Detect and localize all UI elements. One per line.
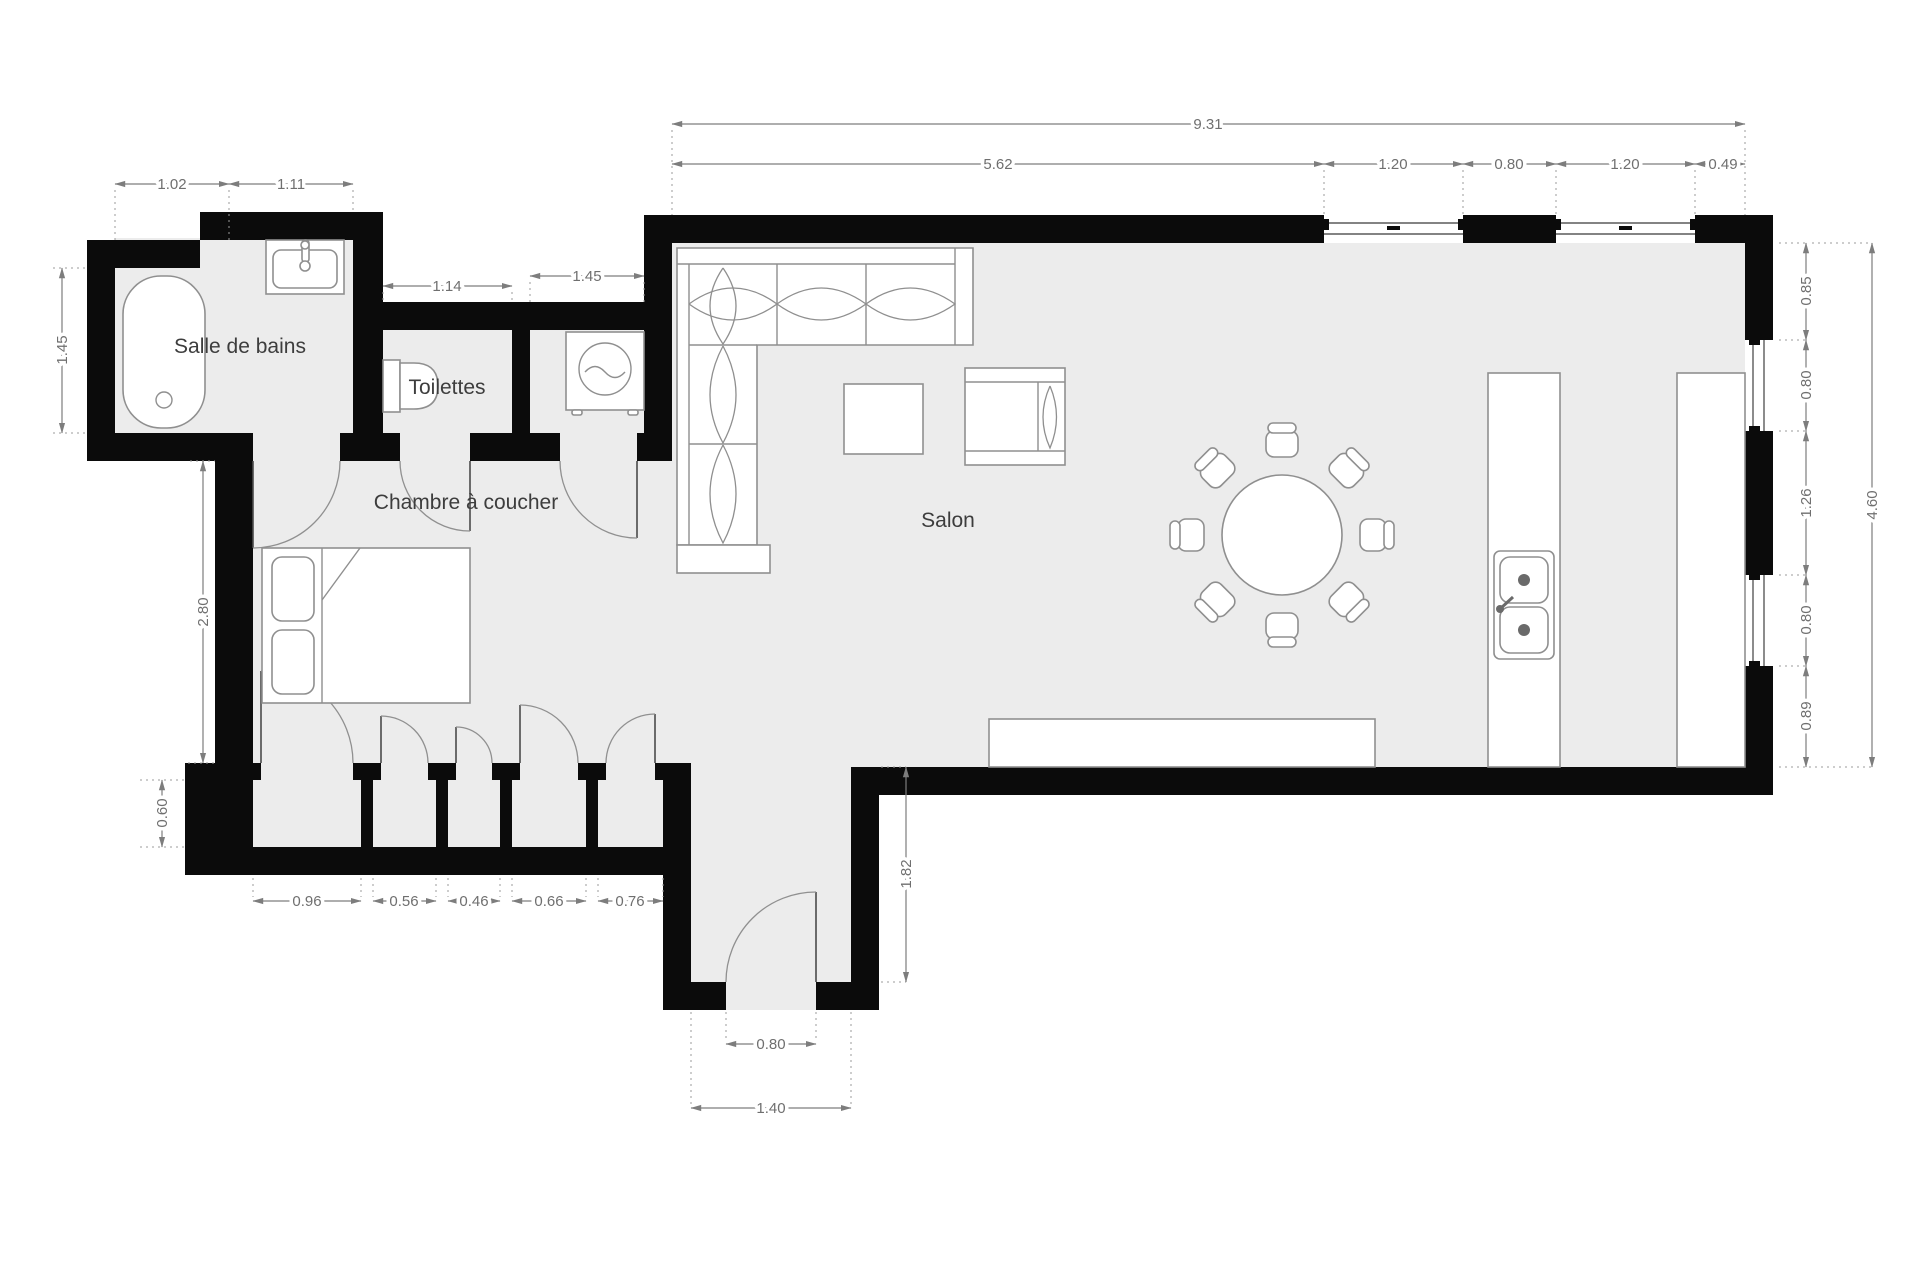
- washing-machine: [566, 332, 644, 415]
- dining-set: [1170, 423, 1394, 647]
- window-right-2: [1745, 575, 1773, 666]
- wall-closet-south: [185, 847, 691, 875]
- wall-band-c: [470, 433, 560, 461]
- room-label-living: Salon: [921, 509, 975, 532]
- floor-plan-page: Salle de bains Toilettes Chambre à couch…: [0, 0, 1920, 1280]
- window-right-1: [1745, 340, 1773, 431]
- floor-plan-svg: Salle de bains Toilettes Chambre à couch…: [0, 0, 1920, 1280]
- dim-bath-height: 1.45: [54, 335, 71, 364]
- dim-overall-width: 9.31: [1193, 116, 1222, 133]
- dim-top-4: 1.20: [1610, 156, 1639, 173]
- wall-bedroom-west: [215, 433, 253, 763]
- window-top-1: [1324, 215, 1463, 243]
- wall-top-2: [1463, 215, 1556, 243]
- dim-right-2: 0.80: [1798, 370, 1815, 399]
- wall-top-3: [1695, 215, 1773, 243]
- dim-entry-door: 0.80: [756, 1036, 785, 1053]
- wall-vestibule-south-a: [663, 982, 726, 1010]
- dim-bath-top-1: 1.02: [157, 176, 186, 193]
- room-label-bathroom: Salle de bains: [174, 335, 306, 358]
- window-top-2: [1556, 215, 1695, 243]
- armchair: [965, 368, 1065, 465]
- wall-bath-toilets: [353, 240, 383, 433]
- dim-closet-3: 0.46: [459, 893, 488, 910]
- dim-top-2: 1.20: [1378, 156, 1407, 173]
- bathroom-sink: [266, 240, 344, 294]
- coffee-table: [844, 384, 923, 454]
- dim-right-4: 0.80: [1798, 605, 1815, 634]
- pillow: [272, 630, 314, 694]
- wall-living-west: [644, 243, 672, 461]
- dim-closet-5: 0.76: [615, 893, 644, 910]
- wall-bottom: [851, 767, 1773, 795]
- dim-toilets-width: 1.14: [432, 278, 461, 295]
- wall-toilets-utility-top: [383, 302, 672, 330]
- dining-table: [1222, 475, 1342, 595]
- dim-closet-4: 0.66: [534, 893, 563, 910]
- wall-top-1: [644, 215, 1324, 243]
- bed: [262, 548, 470, 703]
- wall-vestibule-east: [851, 767, 879, 1010]
- dim-top-5: 0.49: [1708, 156, 1737, 173]
- dim-right-1: 0.85: [1798, 276, 1815, 305]
- dim-closet-depth: 0.60: [154, 798, 171, 827]
- dim-utility-width: 1.45: [572, 268, 601, 285]
- dim-entry-width: 1.40: [756, 1100, 785, 1117]
- sideboard: [989, 719, 1375, 767]
- dim-bedroom-height: 2.80: [195, 597, 212, 626]
- dim-bath-top-2: 1.11: [277, 176, 305, 193]
- dim-closet-2: 0.56: [389, 893, 418, 910]
- wall-vestibule-south-b: [816, 982, 879, 1010]
- dim-entry-hall: 1.82: [898, 859, 915, 888]
- pillow: [272, 557, 314, 621]
- dim-right-5: 0.89: [1798, 701, 1815, 730]
- kitchen-island: [1488, 373, 1560, 767]
- dim-top-3: 0.80: [1494, 156, 1523, 173]
- wall-right-1: [1745, 243, 1773, 340]
- wall-bath-top-right: [200, 212, 383, 240]
- dim-closet-1: 0.96: [292, 893, 321, 910]
- dim-top-1: 5.62: [983, 156, 1012, 173]
- dim-overall-height: 4.60: [1864, 490, 1881, 519]
- wall-right-2: [1745, 431, 1773, 575]
- kitchen-sink: [1494, 551, 1554, 659]
- wall-toilets-utility-divider: [512, 330, 530, 433]
- wall-bath-west: [87, 240, 115, 461]
- dim-right-3: 1.26: [1798, 488, 1815, 517]
- room-label-bedroom: Chambre à coucher: [374, 491, 558, 514]
- wall-band-b: [340, 433, 400, 461]
- kitchen-counter: [1677, 373, 1745, 767]
- room-label-toilets: Toilettes: [408, 376, 485, 399]
- wall-vestibule-west: [663, 763, 691, 1010]
